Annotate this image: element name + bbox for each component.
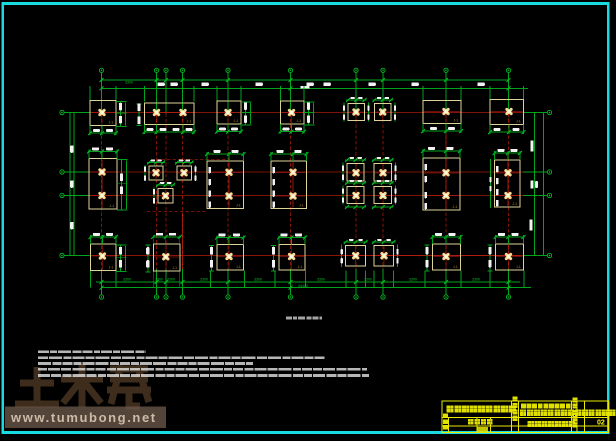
svg-text:J-1: J-1 bbox=[298, 265, 303, 269]
svg-text:3300: 3300 bbox=[254, 278, 262, 282]
svg-text:3300: 3300 bbox=[123, 278, 131, 282]
svg-text:J-1: J-1 bbox=[297, 119, 302, 123]
svg-text:J-1: J-1 bbox=[172, 266, 177, 270]
svg-text:J-1: J-1 bbox=[454, 119, 459, 123]
svg-text:3300: 3300 bbox=[409, 278, 417, 282]
svg-text:3300: 3300 bbox=[472, 278, 480, 282]
svg-text:J-1: J-1 bbox=[110, 204, 115, 208]
svg-text:www.tumubong.net: www.tumubong.net bbox=[10, 410, 157, 425]
svg-text:J-1: J-1 bbox=[516, 265, 521, 269]
svg-text:3300: 3300 bbox=[167, 278, 175, 282]
svg-text:J-1: J-1 bbox=[516, 120, 521, 124]
svg-text:J-1: J-1 bbox=[453, 265, 458, 269]
svg-text:44400: 44400 bbox=[298, 284, 308, 288]
svg-text:3300: 3300 bbox=[125, 81, 133, 85]
svg-text:J-1: J-1 bbox=[234, 119, 239, 123]
svg-text:02: 02 bbox=[597, 419, 605, 426]
svg-text:J-1: J-1 bbox=[187, 120, 192, 124]
svg-text:3300: 3300 bbox=[200, 278, 208, 282]
svg-text:J-1: J-1 bbox=[236, 265, 241, 269]
svg-text:3300: 3300 bbox=[317, 278, 325, 282]
svg-text:J-1: J-1 bbox=[299, 204, 304, 208]
svg-text:J-1: J-1 bbox=[513, 202, 518, 206]
svg-text:J-1: J-1 bbox=[453, 205, 458, 209]
svg-text:3300: 3300 bbox=[155, 278, 163, 282]
svg-text:J-1: J-1 bbox=[236, 204, 241, 208]
svg-text:J-1: J-1 bbox=[109, 266, 114, 270]
svg-text:J-1: J-1 bbox=[109, 121, 114, 125]
